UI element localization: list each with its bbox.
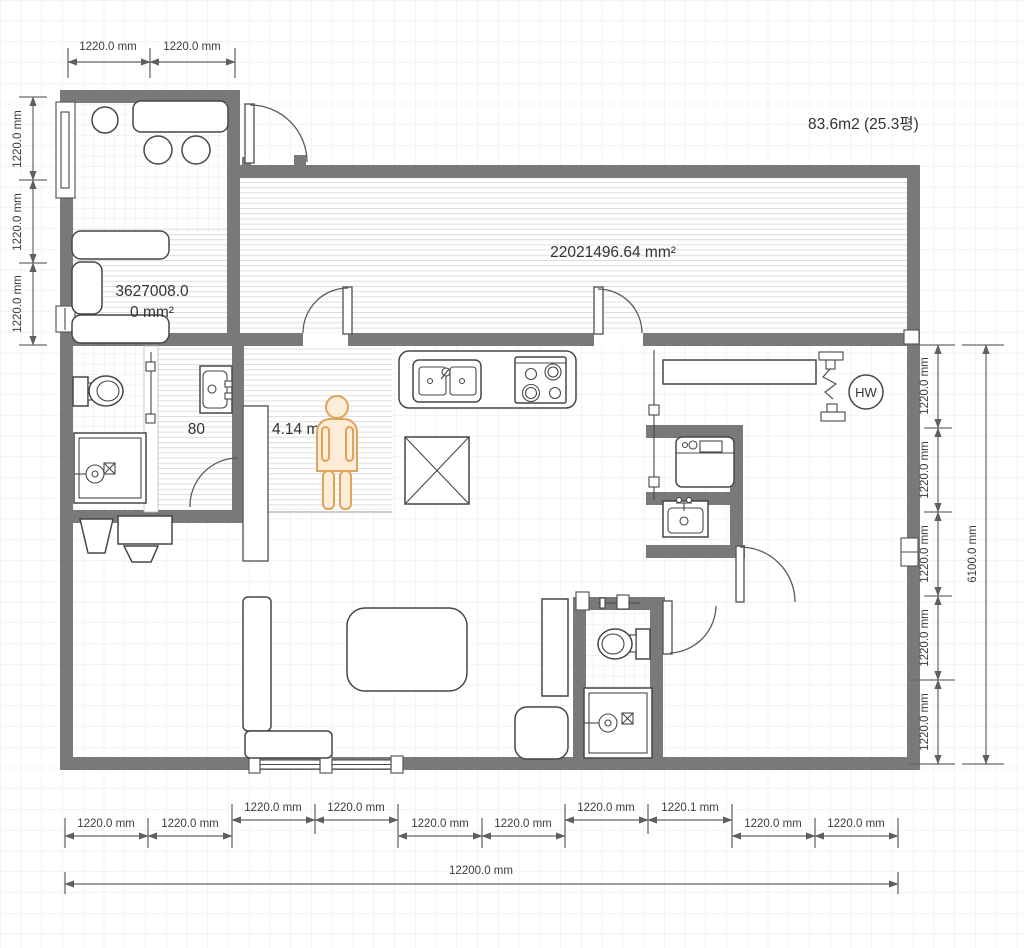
toilet-bottom[interactable] [598, 629, 650, 659]
drain [622, 713, 633, 724]
dim-label: 1220.1 mm [661, 802, 719, 814]
dim-label: 1220.0 mm [12, 193, 24, 251]
kitchen-sink [413, 360, 481, 402]
dim-label: 1220.0 mm [327, 802, 385, 814]
person-head [326, 396, 348, 418]
floorplan-canvas[interactable]: HW [0, 0, 1024, 948]
chair [144, 136, 172, 164]
wall-mid-3 [643, 333, 920, 346]
stove [515, 357, 566, 403]
dim-label: 1220.0 mm [919, 609, 931, 667]
vanity-sink[interactable] [200, 366, 232, 413]
total-area-label: 83.6m2 (25.3평) [808, 115, 919, 133]
toilet-tank [636, 629, 650, 659]
dim-label: 1220.0 mm [163, 41, 221, 53]
person-arm [346, 427, 353, 461]
great-room-area-label: 22021496.64 mm² [550, 244, 676, 261]
toilet-tank [73, 377, 88, 406]
dim-label: 1220.0 mm [79, 41, 137, 53]
person-leg [340, 471, 351, 509]
dim-label: 1220.0 mm [77, 818, 135, 830]
faucet-knob [225, 381, 232, 387]
dim-label: 1220.0 mm [744, 818, 802, 830]
dining-area-label-line1: 3627008.0 [115, 283, 189, 300]
chair [92, 107, 118, 133]
dim-label: 1220.0 mm [919, 693, 931, 751]
wall-mid-2 [348, 333, 594, 346]
wall-outer-bottom [60, 757, 920, 770]
utility-counter[interactable] [663, 360, 816, 384]
window-right-top[interactable] [904, 330, 919, 344]
chair-bottom[interactable] [515, 707, 568, 759]
utility-sink[interactable] [663, 498, 708, 538]
dim-label: 1220.0 mm [494, 818, 552, 830]
door-stop-right [294, 155, 306, 169]
wardrobe[interactable] [542, 599, 568, 696]
washing-machine[interactable] [676, 437, 734, 487]
dim-label-total: 12200.0 mm [449, 865, 513, 877]
dim-label: 1220.0 mm [244, 802, 302, 814]
person-leg [323, 471, 334, 509]
living-table[interactable] [347, 608, 467, 691]
hall-area-label-prefix: 80 [188, 421, 206, 438]
dim-label: 1220.0 mm [161, 818, 219, 830]
wall-dining-right [227, 90, 240, 345]
dim-label: 1220.0 mm [919, 525, 931, 583]
burner [550, 388, 561, 399]
window-left-large-pane [61, 112, 69, 188]
burner [526, 369, 537, 380]
faucet-knob [225, 393, 232, 399]
wall-hall-left [232, 346, 244, 523]
wall-utility-1 [646, 425, 743, 438]
dim-label: 1220.0 mm [827, 818, 885, 830]
wall-great-room-top [240, 165, 920, 178]
dim-label: 1220.0 mm [12, 110, 24, 168]
drain [104, 463, 115, 474]
water-heater-label: HW [855, 385, 877, 400]
door-hall-panel[interactable] [243, 406, 268, 561]
person-arm [322, 427, 329, 461]
dim-label: 1220.0 mm [577, 802, 635, 814]
shower-bottom[interactable] [584, 688, 652, 758]
water-heater[interactable]: HW [849, 375, 883, 409]
window-right-mid[interactable] [901, 538, 918, 566]
dim-label: 1220.0 mm [12, 275, 24, 333]
dim-label: 1220.0 mm [919, 357, 931, 415]
dim-label: 1220.0 mm [919, 441, 931, 499]
kitchen-counter[interactable] [399, 351, 576, 408]
dim-label: 1220.0 mm [411, 818, 469, 830]
shower-left[interactable] [74, 433, 146, 503]
wall-utility-3 [646, 545, 745, 558]
toilet-left[interactable] [73, 376, 123, 406]
dim-label-total: 6100.0 mm [967, 525, 979, 583]
dining-area-label-line2: 0 mm² [130, 304, 174, 321]
chair [182, 136, 210, 164]
hatch-table[interactable] [405, 437, 469, 504]
